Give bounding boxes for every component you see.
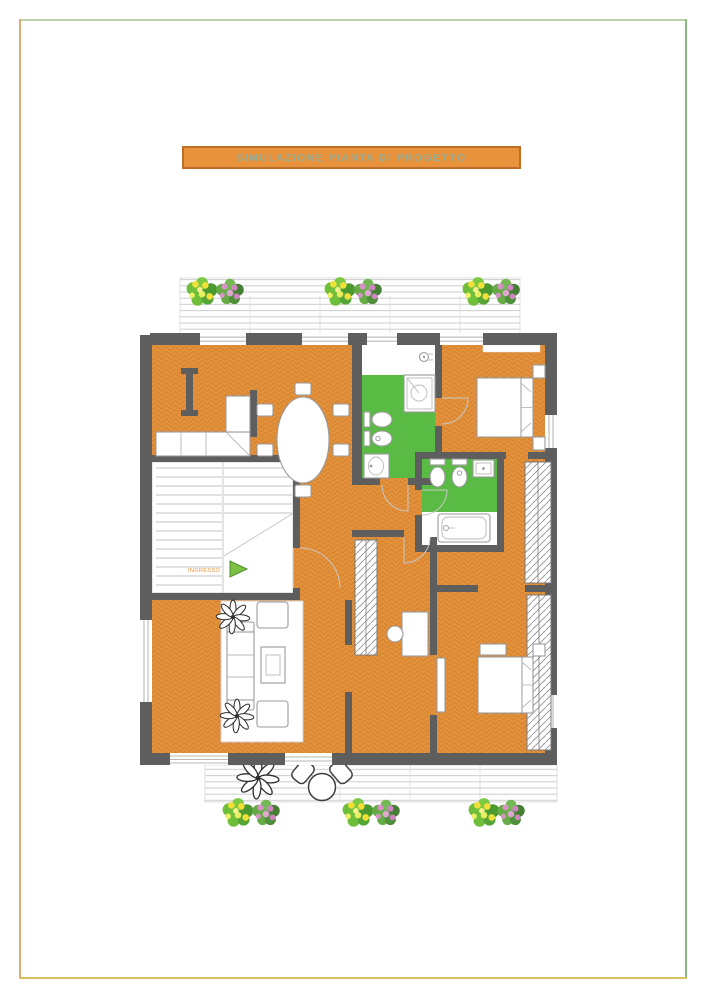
- bidet-icon: [452, 459, 467, 487]
- dining-chair: [257, 404, 273, 416]
- window: [440, 333, 483, 345]
- page: SIMULAZIONE PIANTA DI PROGETTO: [0, 0, 707, 1000]
- window: [170, 753, 228, 765]
- bed: [477, 378, 533, 437]
- dining-chair: [257, 444, 273, 456]
- bench: [480, 644, 506, 655]
- terrace-top: [180, 277, 520, 335]
- entrance-label: INGRESSO: [188, 568, 221, 574]
- sink-icon: [364, 454, 389, 478]
- shrub-icon: [469, 798, 500, 827]
- nightstand: [533, 437, 545, 450]
- bathtub-icon: [438, 514, 490, 542]
- glass-door: [285, 753, 332, 765]
- nightstand: [533, 644, 545, 656]
- desk: [402, 612, 428, 656]
- floor-plan-svg: INGRESSO: [0, 0, 707, 1000]
- door-leaf: [437, 658, 445, 712]
- flower-shrub-icon: [497, 800, 525, 825]
- flower-shrub-icon: [252, 800, 280, 825]
- dining-chair: [333, 444, 349, 456]
- bed: [478, 657, 533, 713]
- window: [200, 333, 246, 345]
- dining-chair: [295, 485, 311, 497]
- nightstand: [533, 365, 545, 378]
- living-room: [216, 600, 303, 742]
- toilet-icon: [364, 412, 392, 427]
- terrace-bottom: [205, 757, 557, 827]
- dining-chair: [333, 404, 349, 416]
- window: [140, 620, 152, 702]
- shrub-icon: [343, 798, 374, 827]
- stairwell-floor: [152, 462, 293, 593]
- shrub-icon: [223, 798, 254, 827]
- walkin-closet: [525, 462, 551, 583]
- bidet-icon: [364, 431, 392, 446]
- shower-icon: [404, 375, 435, 412]
- armchair: [257, 602, 288, 628]
- dining-chair: [295, 383, 311, 395]
- armchair: [257, 701, 288, 727]
- sofa: [227, 622, 254, 710]
- coffee-table: [261, 647, 285, 683]
- toilet-icon: [430, 459, 445, 487]
- window: [545, 415, 557, 448]
- sink-icon: [473, 460, 494, 477]
- desk-chair: [387, 626, 403, 642]
- flower-shrub-icon: [372, 800, 400, 825]
- window: [302, 333, 348, 345]
- window: [367, 333, 397, 345]
- bedroom1-window-sill: [483, 345, 540, 352]
